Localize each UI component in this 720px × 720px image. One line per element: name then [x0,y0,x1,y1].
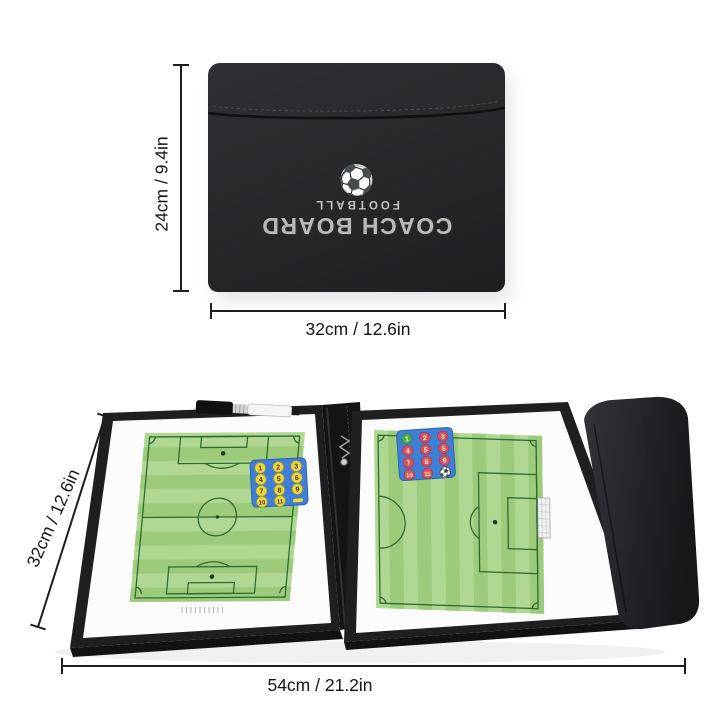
svg-text:6: 6 [295,475,299,482]
svg-text:1: 1 [258,465,262,472]
dimension-case-width: 32cm / 12.6in [210,302,506,346]
dimension-case-height: 24cm / 9.4in [170,64,192,292]
case-height-label: 24cm / 9.4in [152,136,173,231]
board-width-label: 54cm / 21.2in [267,675,372,695]
product-showcase: 24cm / 9.4in COACH BOARD FOOTBALL ⚽ 32cm… [0,0,720,720]
svg-text:4: 4 [406,448,410,455]
svg-text:9: 9 [442,458,446,465]
dash-magnet-icon [293,498,303,502]
svg-text:9: 9 [295,486,299,493]
svg-text:5: 5 [424,447,428,454]
ball-magnet-icon: ⚽ [438,466,452,479]
coach-board-case: COACH BOARD FOOTBALL ⚽ [208,63,505,292]
svg-text:7: 7 [259,488,263,495]
svg-text:10: 10 [406,473,414,479]
dimension-tick [504,303,506,319]
svg-text:2: 2 [423,435,427,442]
open-board-figure: 1 2 3 4 5 6 7 8 9 10 11 [0,390,720,720]
left-pitch [130,432,305,602]
svg-text:8: 8 [424,459,428,466]
svg-text:7: 7 [406,460,410,467]
dimension-tick [173,290,189,292]
svg-text:5: 5 [277,476,281,483]
dimension-board-width: 54cm / 21.2in [62,658,685,695]
svg-text:1: 1 [405,436,409,443]
goal-net-icon [538,498,550,538]
soccer-ball-icon: ⚽ [208,163,505,195]
case-brand-block: COACH BOARD FOOTBALL ⚽ [208,163,505,238]
svg-text:3: 3 [294,463,298,470]
dimension-line [210,310,506,312]
svg-text:4: 4 [259,477,263,484]
case-width-label: 32cm / 12.6in [305,319,410,340]
brand-subtitle: FOOTBALL [208,197,505,210]
right-number-pad: 1 2 3 4 5 6 7 8 9 10 11 ⚽ [396,427,455,482]
svg-text:11: 11 [424,472,431,478]
dimension-line [180,64,182,292]
brand-title: COACH BOARD [208,213,505,238]
svg-text:6: 6 [442,446,446,453]
svg-text:8: 8 [277,487,281,494]
dimension-tick [173,64,189,66]
svg-text:10: 10 [259,500,267,506]
left-number-pad: 1 2 3 4 5 6 7 8 9 10 11 [250,458,308,508]
svg-text:2: 2 [276,464,280,471]
dimension-tick [210,303,212,319]
left-panel: 1 2 3 4 5 6 7 8 9 10 11 [70,400,343,657]
board-height-label: 32cm / 12.6in [22,466,83,570]
svg-text:11: 11 [277,499,284,505]
svg-text:3: 3 [441,434,445,441]
